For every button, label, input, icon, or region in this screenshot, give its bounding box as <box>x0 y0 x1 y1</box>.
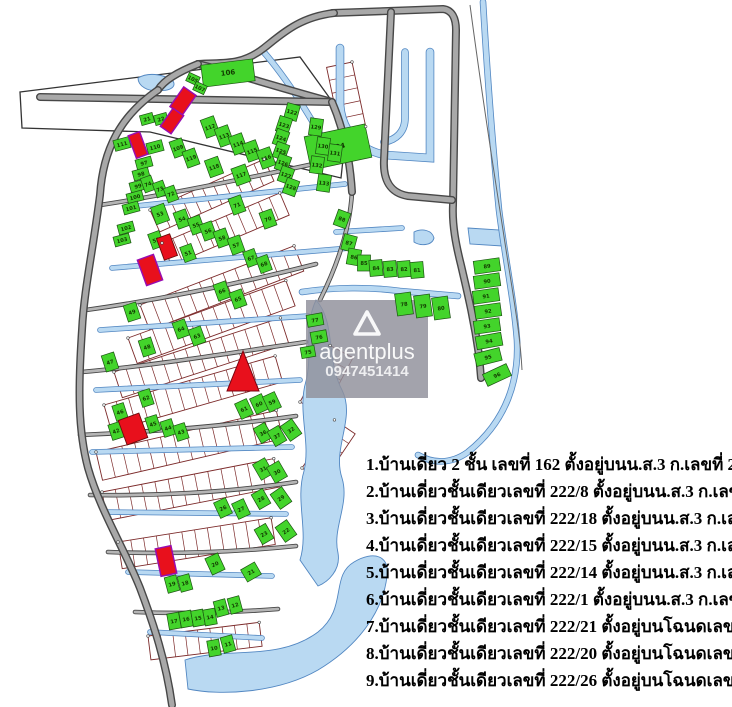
survey-dot <box>275 409 278 412</box>
airstrip-shape <box>20 57 347 178</box>
survey-dot <box>301 467 304 470</box>
plot-map-image: agentplus0947451414106105107104212211111… <box>0 0 732 707</box>
survey-dot <box>147 635 150 638</box>
listing-line: 1.บ้านเดี่ยว 2 ชั้น เลขที่ 162 ตั้งอยู่บ… <box>366 451 730 478</box>
survey-dot <box>272 457 275 460</box>
listing-line: 2.บ้านเดี่ยวชั้นเดียวเลขที่ 222/8 ตั้งอย… <box>366 478 730 505</box>
airstrip-outline <box>20 57 347 178</box>
listing-line: 9.บ้านเดี่ยวชั้นเดียวเลขที่ 222/26 ตั้งอ… <box>366 667 730 694</box>
sold-plot <box>137 254 162 285</box>
listing-line: 3.บ้านเดี่ยวชั้นเดียวเลขที่ 222/18 ตั้งอ… <box>366 505 730 532</box>
listing-line: 7.บ้านเดี่ยวชั้นเดียวเลขที่ 222/21 ตั้งอ… <box>366 613 730 640</box>
survey-dot <box>103 404 106 407</box>
survey-dot <box>258 621 261 624</box>
plot-number: 83 <box>386 267 394 274</box>
survey-dot <box>299 401 302 404</box>
watermark: agentplus0947451414 <box>306 300 428 398</box>
survey-dot <box>285 279 288 282</box>
plot-number: 91 <box>482 293 490 300</box>
survey-dot <box>351 61 354 64</box>
water-body <box>468 228 502 246</box>
listing-line: 5.บ้านเดี่ยวชั้นเดียวเลขที่ 222/14 ตั้งอ… <box>366 559 730 586</box>
plot-number: 82 <box>400 267 408 274</box>
plot-number: 90 <box>483 278 491 285</box>
survey-dot <box>161 242 164 245</box>
survey-dot <box>95 451 98 454</box>
plot-number: 93 <box>483 323 491 330</box>
survey-dot <box>139 304 142 307</box>
listing-line: 4.บ้านเดี่ยวชั้นเดียวเลขที่ 222/15 ตั้งอ… <box>366 532 730 559</box>
survey-dot <box>329 344 332 347</box>
survey-dot <box>274 355 277 358</box>
plot-number: 80 <box>437 305 445 312</box>
survey-dot <box>293 245 296 248</box>
listing-line: 8.บ้านเดี่ยวชั้นเดียวเลขที่ 222/20 ตั้งอ… <box>366 640 730 667</box>
plot-number: 84 <box>372 266 380 273</box>
plot-number: 92 <box>484 308 492 315</box>
survey-dot <box>113 371 116 374</box>
major-road <box>384 12 452 200</box>
watermark-phone: 0947451414 <box>325 363 409 380</box>
survey-dot <box>101 491 104 494</box>
survey-dot <box>263 158 266 161</box>
plot-number: 89 <box>483 263 491 270</box>
watermark-brand: agentplus <box>319 339 414 364</box>
survey-dot <box>333 419 336 422</box>
plot-number: 79 <box>419 303 427 310</box>
survey-dot <box>117 541 120 544</box>
survey-dot <box>279 317 282 320</box>
plot-number: 85 <box>360 261 368 267</box>
canal <box>104 512 286 514</box>
survey-dot <box>364 125 367 128</box>
plot-number: 81 <box>413 268 421 275</box>
property-listings: 1.บ้านเดี่ยว 2 ชั้น เลขที่ 162 ตั้งอยู่บ… <box>366 451 730 694</box>
listing-line: 6.บ้านเดี่ยวชั้นเดียวเลขที่ 222/1 ตั้งอย… <box>366 586 730 613</box>
survey-dot <box>279 192 282 195</box>
sold-plot <box>128 132 147 159</box>
plot-number: 78 <box>400 301 408 308</box>
major-road-casing <box>384 12 452 200</box>
survey-dot <box>270 516 273 519</box>
water-body <box>414 230 434 245</box>
survey-dot <box>127 337 130 340</box>
survey-dot <box>149 209 152 212</box>
